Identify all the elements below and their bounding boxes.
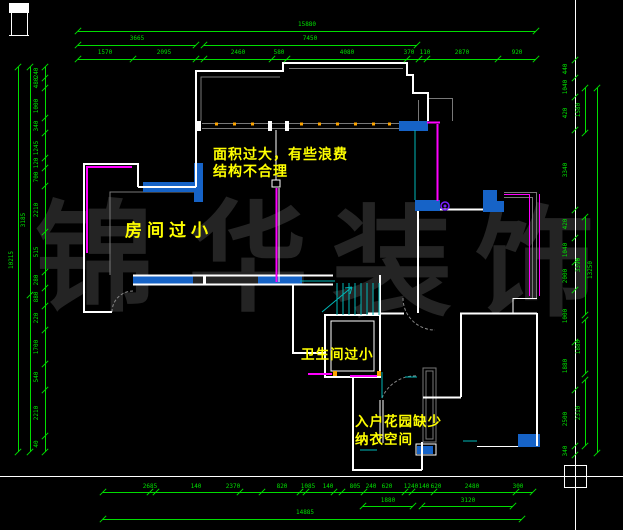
annotation-area-note-line2: 结构不合理 [213, 161, 288, 181]
annotation-entry-note-line1: 入户花园缺少 [355, 410, 442, 430]
annotation-entry-note-line2: 纳衣空间 [355, 428, 413, 448]
annotation-room-small: 房间过小 [125, 216, 213, 241]
annotations-layer: 面积过大，有些浪费 结构不合理 房间过小 卫生间过小 入户花园缺少 纳衣空间 [0, 0, 623, 530]
annotation-bathroom-small: 卫生间过小 [301, 343, 374, 363]
cad-sheet: 锦 华 装 饰 [0, 0, 623, 530]
